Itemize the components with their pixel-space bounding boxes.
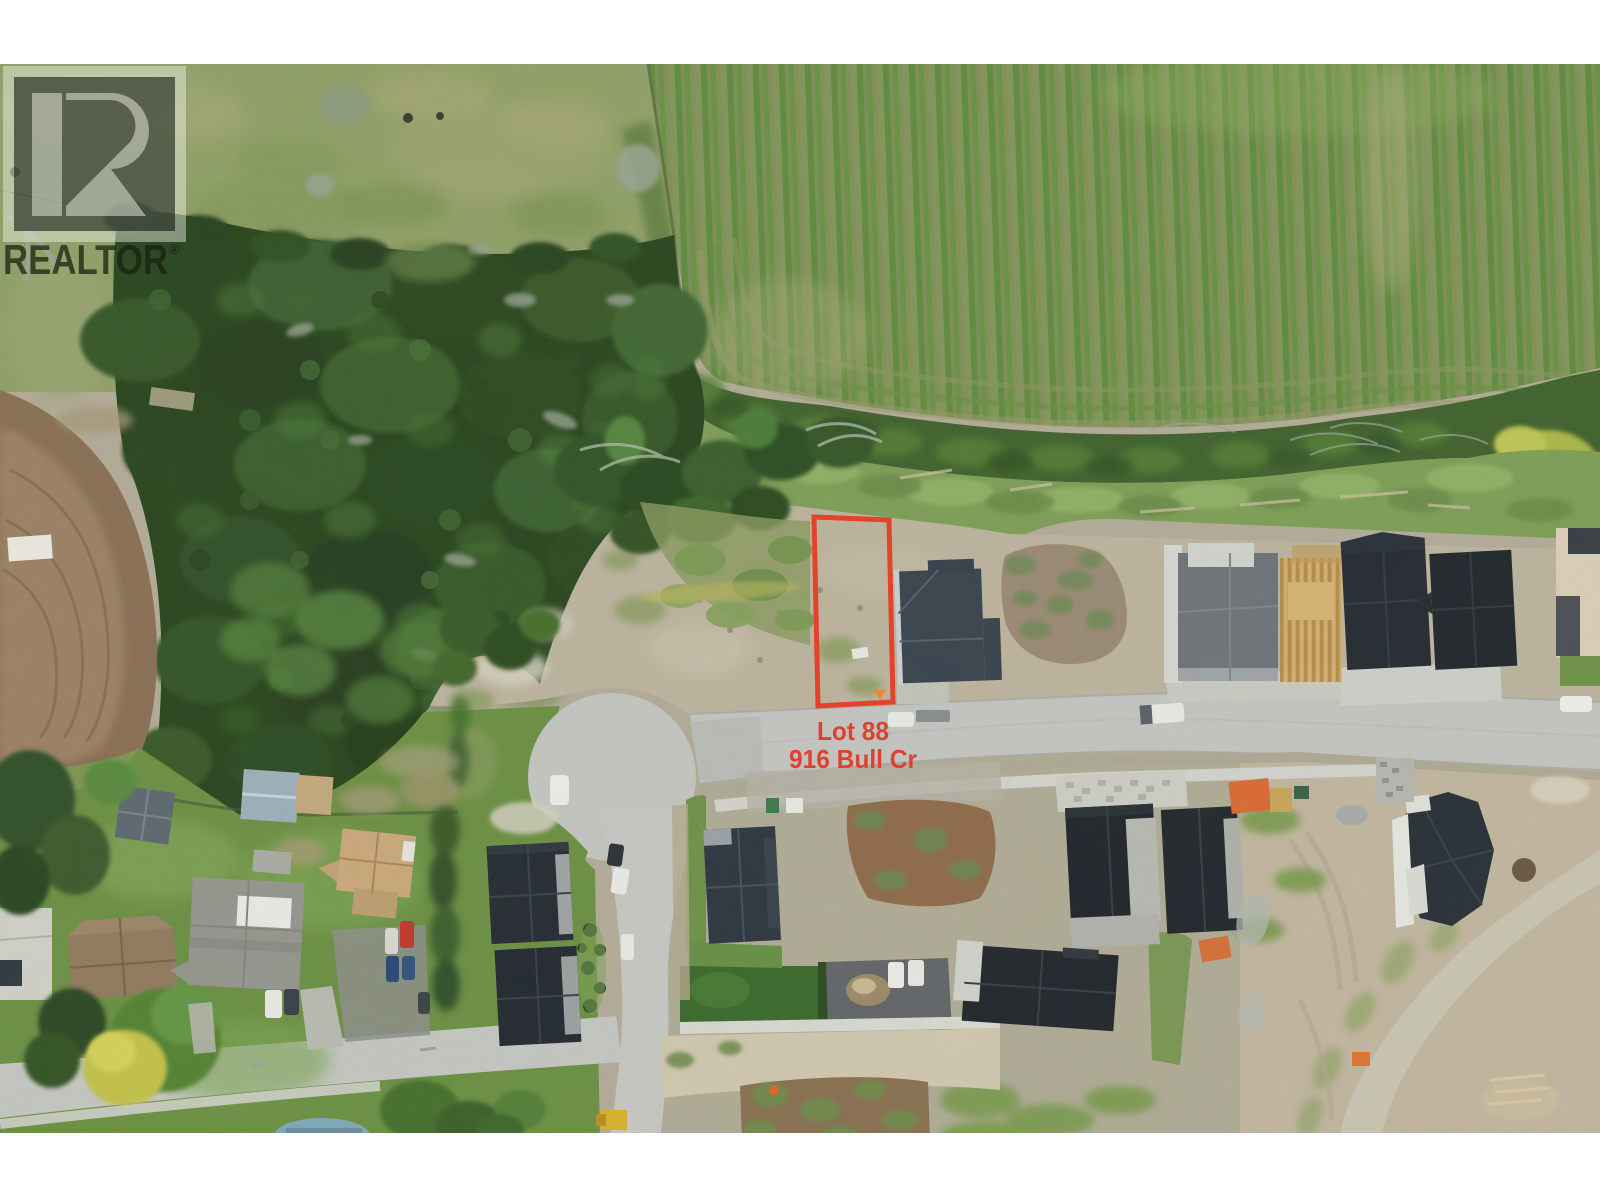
svg-text:®: ® [169,241,180,257]
svg-text:REALTOR: REALTOR [3,236,168,283]
svg-text:Lot 88: Lot 88 [817,716,889,746]
svg-text:916 Bull Cr: 916 Bull Cr [789,744,917,774]
